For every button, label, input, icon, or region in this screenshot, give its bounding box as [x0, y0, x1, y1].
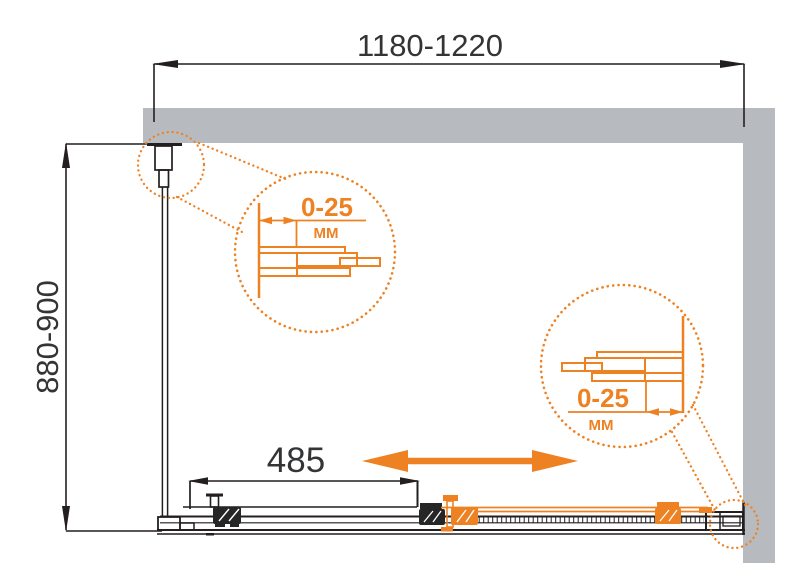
- dimension-panel: 485: [188, 441, 420, 509]
- adjust-arrow-right-icon: [284, 217, 297, 224]
- dimension-arrow-left-icon: [188, 477, 208, 484]
- adjust-range-label-1: 0-25: [301, 192, 353, 222]
- roller-orange-right: [655, 502, 681, 524]
- panel-width-label: 485: [267, 441, 325, 480]
- leader-line-lower: [177, 197, 242, 232]
- adjust-unit-label-2: MM: [589, 417, 614, 434]
- leader-line-upper: [199, 143, 288, 180]
- leader-line-lower: [672, 432, 716, 512]
- shower-enclosure-installation-drawing: 1180-1220 880-900 485: [0, 0, 800, 576]
- adjust-arrow-left-icon: [259, 217, 272, 224]
- detail-zoom-circle: [541, 285, 703, 447]
- left-wall-profile: [147, 145, 182, 517]
- dimension-depth: 880-900: [30, 142, 162, 532]
- width-range-label: 1180-1220: [357, 28, 503, 63]
- adjust-arrow-left-icon: [646, 408, 659, 415]
- adjust-arrow-right-icon: [670, 408, 683, 415]
- detail-callout-2: 0-25 MM: [541, 285, 758, 548]
- dimension-arrow-up-icon: [62, 142, 70, 168]
- door-end-block: [699, 507, 712, 513]
- wall-top: [143, 108, 775, 143]
- sliding-door: [441, 495, 712, 532]
- adjust-unit-label-1: MM: [314, 225, 339, 242]
- dimension-arrow-right-icon: [720, 60, 746, 68]
- roller-black-right: [419, 503, 445, 525]
- track-left-corner-profile: [158, 517, 194, 530]
- leader-line-upper: [693, 405, 745, 505]
- detail-callout-1: 0-25 MM: [138, 132, 395, 332]
- dimension-arrow-down-icon: [62, 506, 70, 532]
- depth-range-label: 880-900: [30, 280, 65, 394]
- wall-right: [743, 143, 775, 563]
- dimension-arrow-left-icon: [152, 60, 178, 68]
- drawing-canvas: 1180-1220 880-900 485: [0, 0, 800, 576]
- adjust-range-label-2: 0-25: [577, 383, 629, 413]
- roller-orange-left: [441, 495, 478, 532]
- slide-direction-arrow-icon: [362, 450, 578, 472]
